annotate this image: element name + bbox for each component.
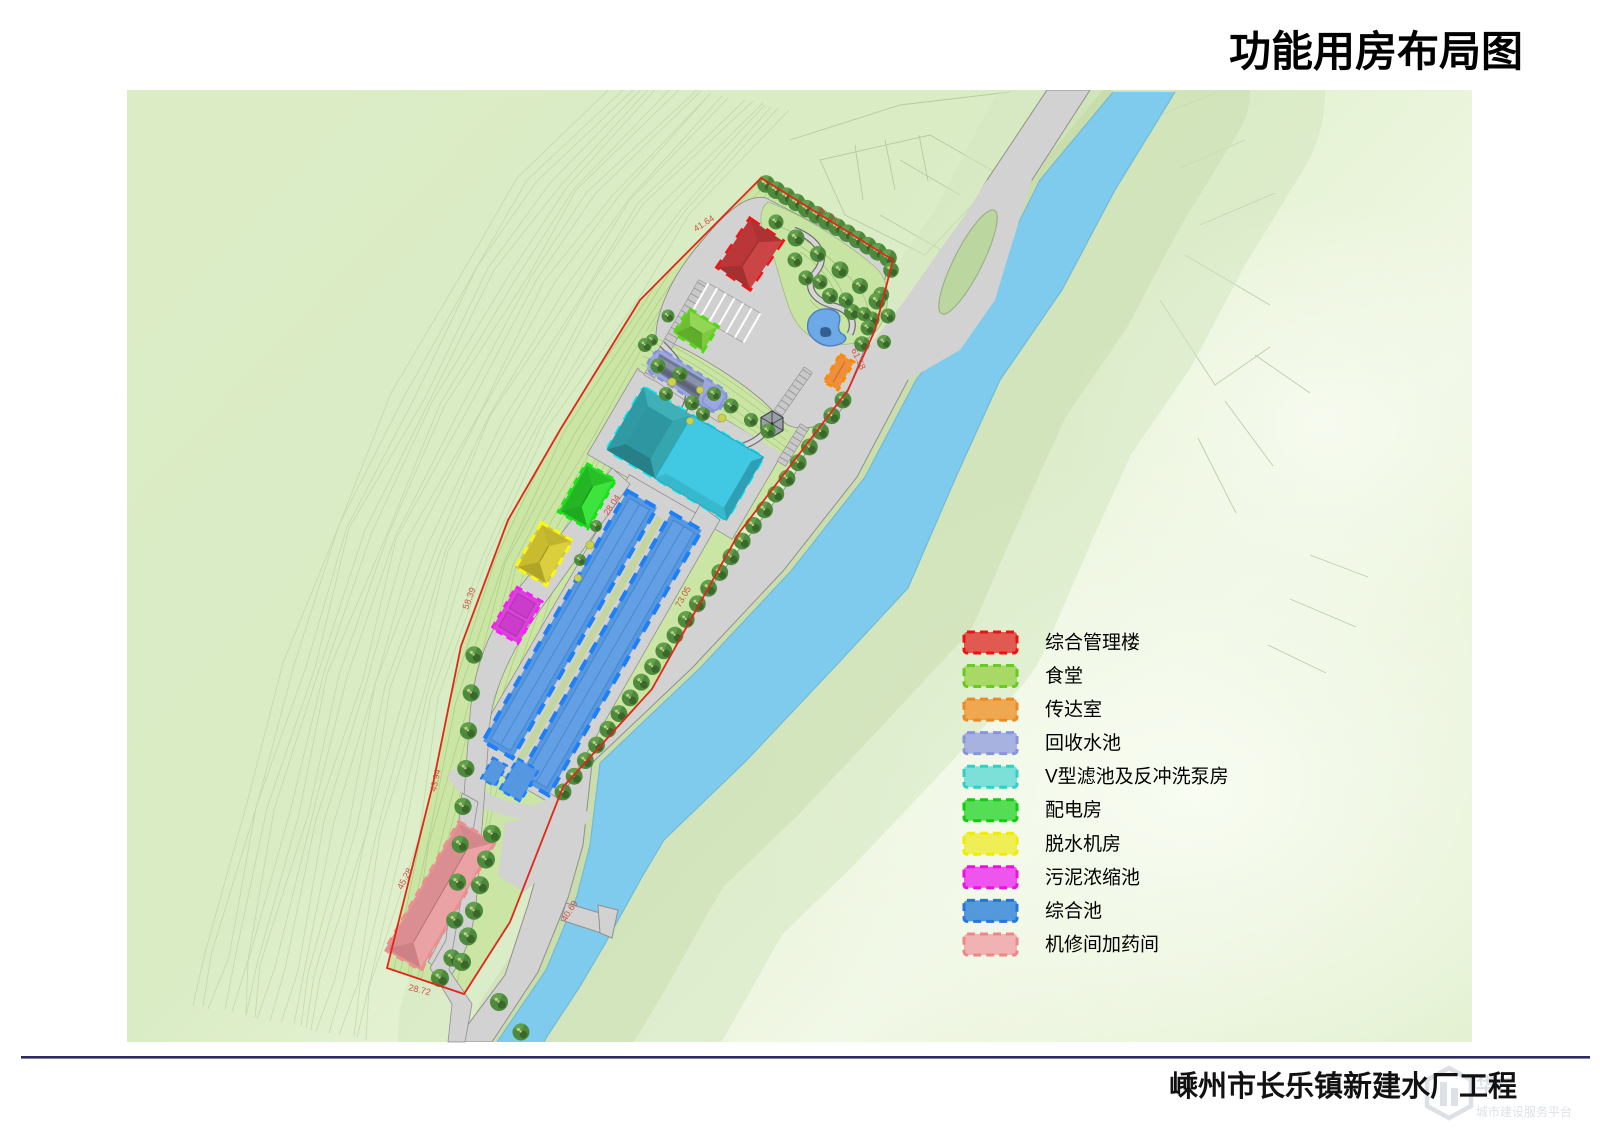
svg-text:功能用房布局图: 功能用房布局图 [1229,28,1523,75]
svg-text:污泥浓缩池: 污泥浓缩池 [1045,866,1140,888]
svg-text:综合池: 综合池 [1045,900,1102,922]
svg-text:食堂: 食堂 [1045,665,1083,687]
svg-text:配电房: 配电房 [1045,799,1102,821]
svg-text:综合管理楼: 综合管理楼 [1045,632,1140,654]
svg-text:回收水池: 回收水池 [1045,732,1121,754]
svg-text:脱水机房: 脱水机房 [1045,833,1121,855]
svg-text:嵊州市长乐镇新建水厂工程: 嵊州市长乐镇新建水厂工程 [1169,1069,1517,1103]
svg-text:V型滤池及反冲洗泵房: V型滤池及反冲洗泵房 [1045,766,1229,788]
svg-text:传达室: 传达室 [1045,699,1102,721]
svg-text:机修间加药间: 机修间加药间 [1045,934,1159,956]
svg-text:城市建设服务平台: 城市建设服务平台 [1476,1104,1572,1119]
